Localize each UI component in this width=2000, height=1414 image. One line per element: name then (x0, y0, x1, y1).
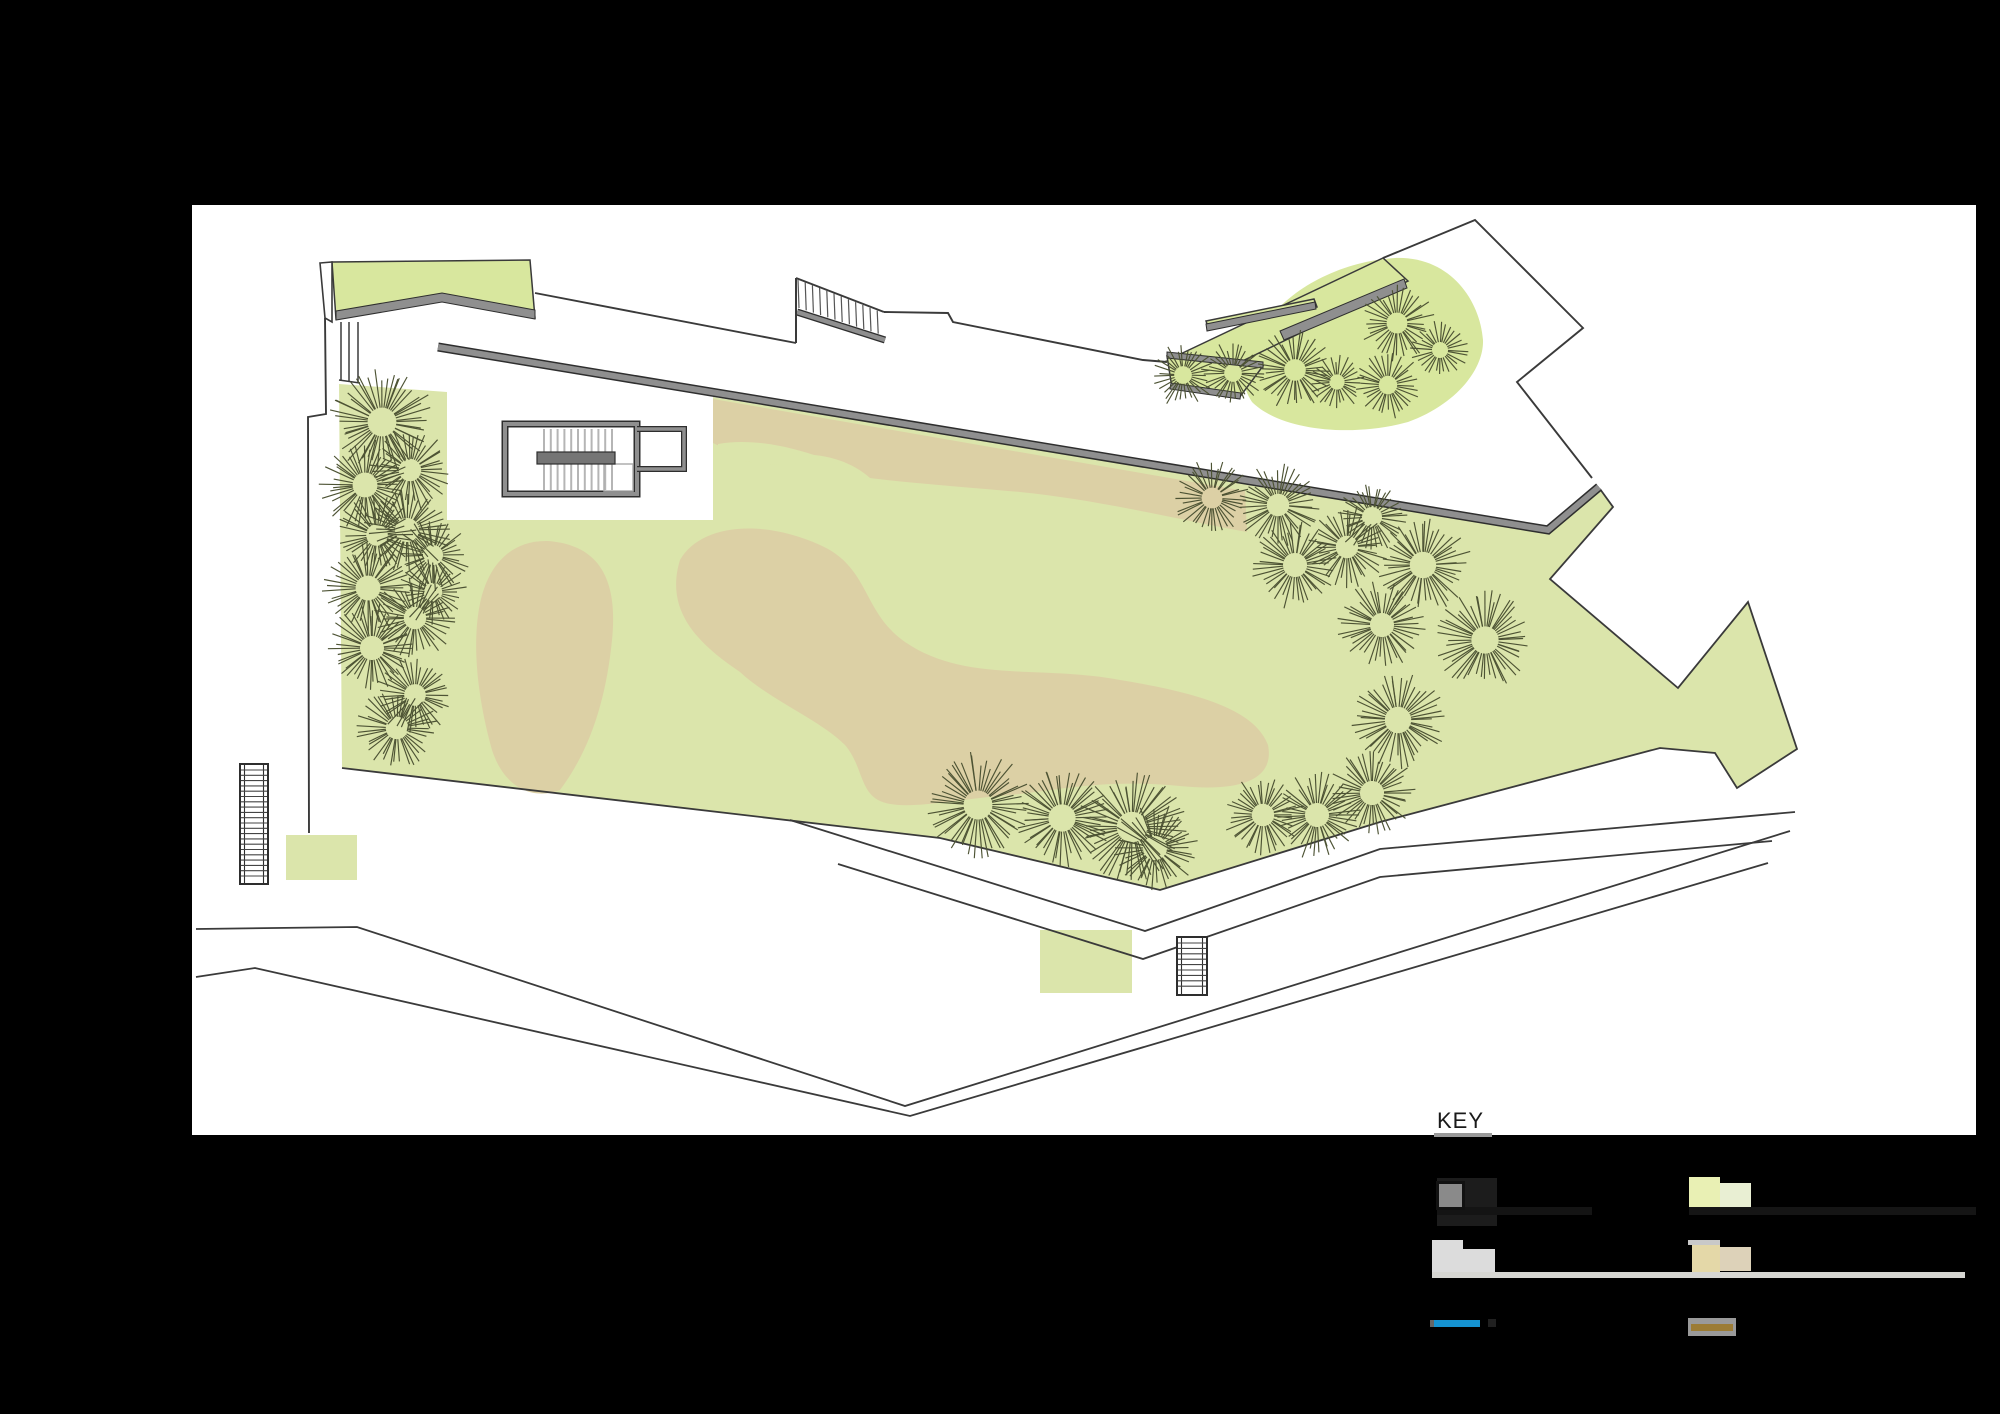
legend-title: KEY (1437, 1108, 1484, 1134)
legend-swatch-mound-2 (1720, 1247, 1751, 1271)
legend-swatch-paving (1432, 1240, 1463, 1272)
legend-swatch-planting (1689, 1177, 1720, 1207)
legend-line-blue-dot (1488, 1319, 1496, 1327)
legend-line-blue (1434, 1320, 1480, 1327)
south-lawn-rect (1040, 930, 1132, 993)
legend-swatch-mound (1692, 1245, 1720, 1272)
legend-swatch-paving-2 (1463, 1249, 1495, 1272)
site-plan-page: KEY (0, 0, 2000, 1414)
legend-swatch-planting-strip (1689, 1207, 1976, 1215)
legend-divider-strip (1432, 1272, 1965, 1278)
legend-title-underline (1434, 1133, 1492, 1137)
west-lawn-rect (286, 835, 357, 880)
legend-swatch-wall (1436, 1181, 1465, 1210)
stair-landing (537, 452, 615, 464)
legend-line-brown (1691, 1324, 1733, 1331)
legend-swatch-planting-2 (1720, 1183, 1751, 1207)
